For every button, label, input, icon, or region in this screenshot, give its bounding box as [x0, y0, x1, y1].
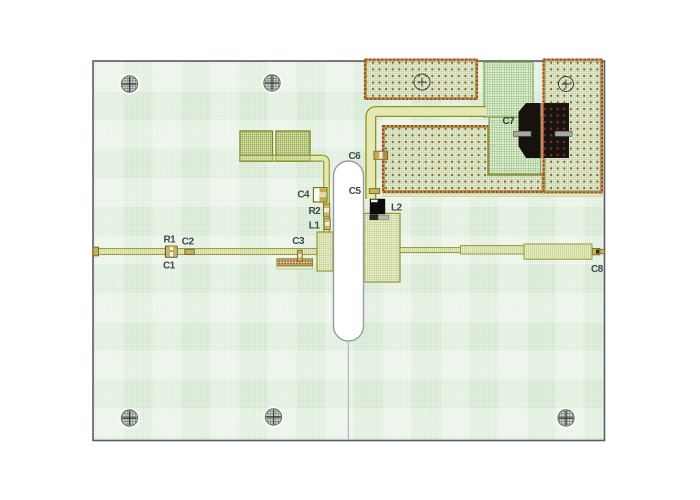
svg-text:R2: R2 — [309, 206, 322, 217]
svg-text:C6: C6 — [349, 151, 362, 162]
svg-text:C4: C4 — [297, 190, 310, 201]
svg-text:C2: C2 — [182, 237, 195, 248]
svg-text:R1: R1 — [164, 234, 177, 245]
svg-text:C7: C7 — [503, 116, 516, 127]
svg-text:C5: C5 — [349, 186, 362, 197]
svg-text:C3: C3 — [292, 236, 305, 247]
svg-text:C1: C1 — [163, 261, 176, 272]
svg-text:L2: L2 — [391, 203, 403, 214]
svg-text:C8: C8 — [591, 264, 604, 275]
svg-text:L1: L1 — [309, 220, 321, 231]
